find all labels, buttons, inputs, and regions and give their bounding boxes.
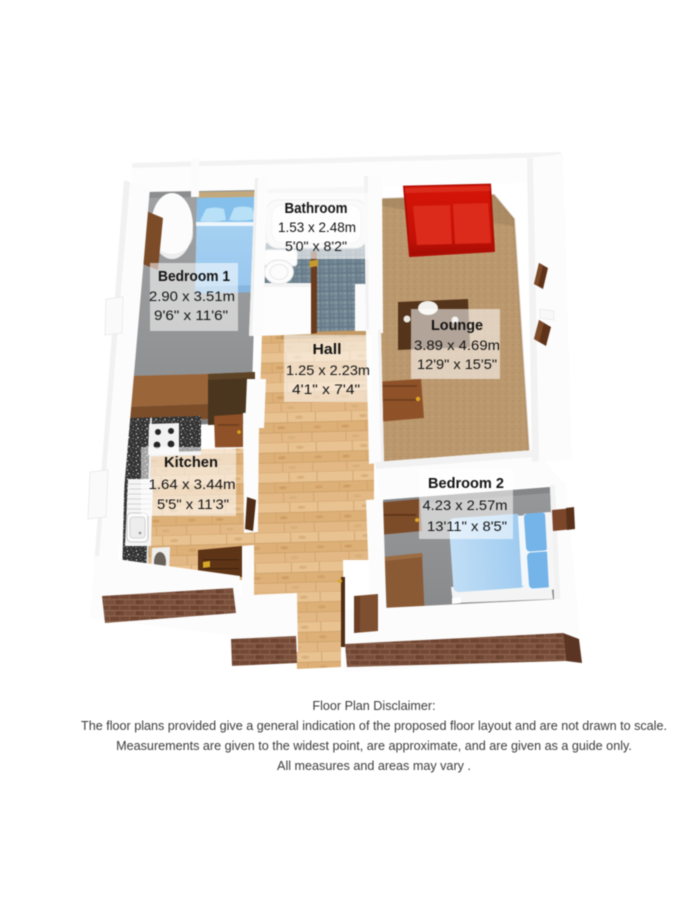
svg-text:5'0" x 8'2": 5'0" x 8'2" [285, 239, 347, 254]
svg-text:4.23 x 2.57m: 4.23 x 2.57m [423, 498, 508, 513]
svg-text:1.53 x 2.48m: 1.53 x 2.48m [278, 220, 356, 235]
svg-text:Bedroom 1: Bedroom 1 [158, 268, 230, 285]
svg-text:Hall: Hall [313, 341, 342, 358]
svg-text:12'9" x 15'5": 12'9" x 15'5" [417, 357, 497, 372]
svg-text:9'6" x 11'6": 9'6" x 11'6" [154, 308, 228, 323]
svg-text:Floor Plan Disclaimer:: Floor Plan Disclaimer: [312, 699, 435, 713]
svg-text:Bedroom 2: Bedroom 2 [428, 475, 504, 492]
svg-text:5'5" x 11'3": 5'5" x 11'3" [157, 497, 229, 512]
svg-text:Lounge: Lounge [431, 317, 483, 334]
svg-text:2.90 x 3.51m: 2.90 x 3.51m [149, 289, 235, 304]
svg-text:Measurements are given to the: Measurements are given to the widest poi… [116, 739, 632, 753]
svg-text:Kitchen: Kitchen [164, 454, 218, 471]
svg-text:13'11" x 8'5": 13'11" x 8'5" [427, 519, 507, 534]
svg-text:Bathroom: Bathroom [285, 200, 348, 217]
svg-text:1.25 x 2.23m: 1.25 x 2.23m [286, 363, 370, 378]
svg-text:1.64 x 3.44m: 1.64 x 3.44m [149, 477, 236, 492]
svg-text:4'1" x 7'4": 4'1" x 7'4" [292, 382, 360, 397]
svg-text:The floor plans provided give: The floor plans provided give a general … [81, 719, 667, 733]
svg-text:3.89 x 4.69m: 3.89 x 4.69m [414, 338, 500, 353]
svg-text:All measures and areas may var: All measures and areas may vary . [277, 759, 471, 773]
